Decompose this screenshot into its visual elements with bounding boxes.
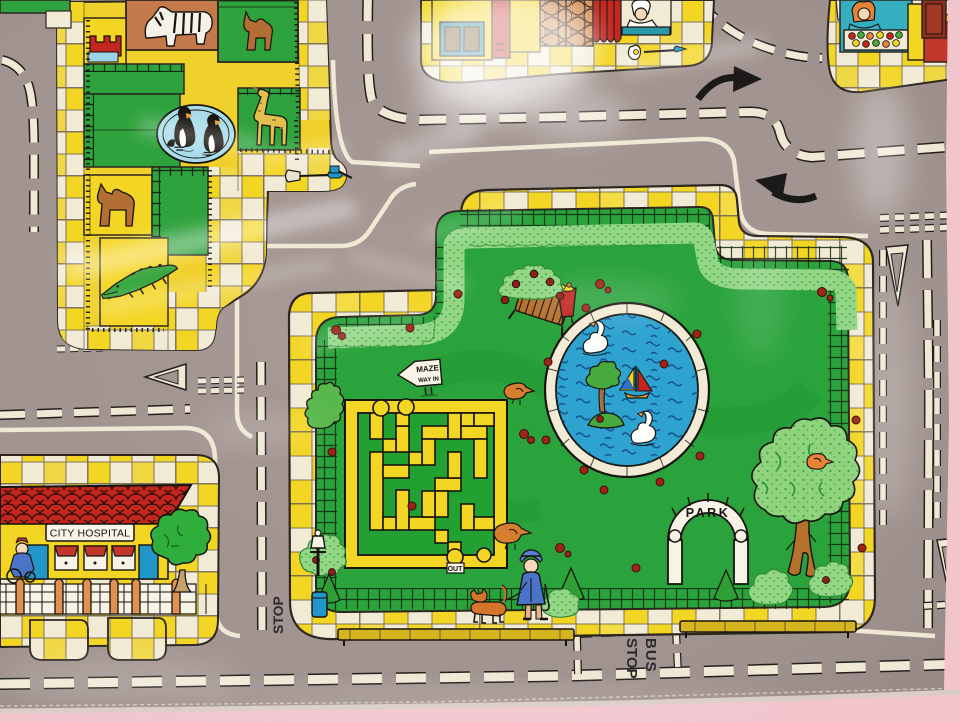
svg-text:PARK: PARK xyxy=(686,506,731,520)
svg-text:STOP: STOP xyxy=(270,596,286,634)
svg-text:CITY HOSPITAL: CITY HOSPITAL xyxy=(50,528,130,540)
svg-text:OUT: OUT xyxy=(448,566,464,573)
svg-text:STOP: STOP xyxy=(623,638,640,679)
svg-text:BUS: BUS xyxy=(642,638,659,673)
